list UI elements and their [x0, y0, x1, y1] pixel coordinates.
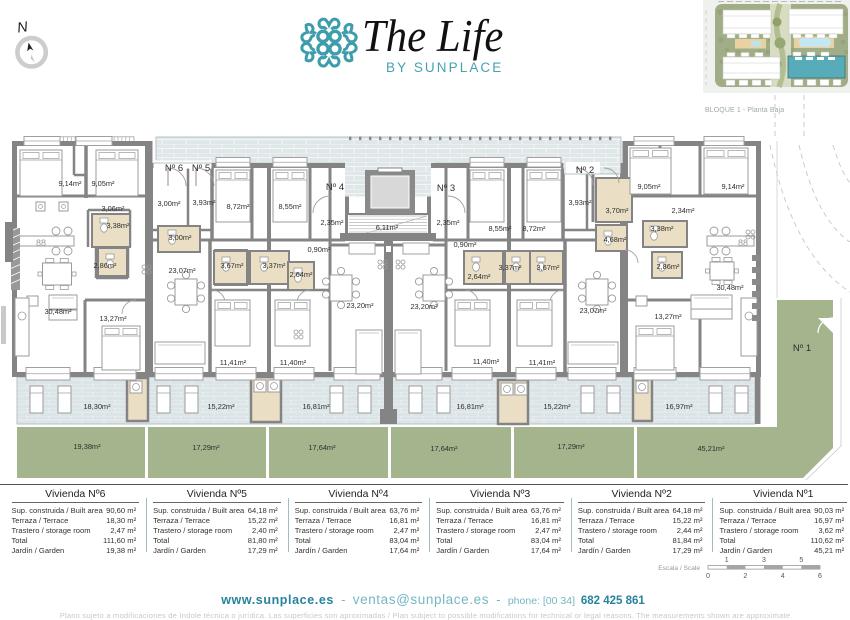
- svg-text:23,07m²: 23,07m²: [579, 306, 607, 315]
- svg-text:13,27m²: 13,27m²: [654, 312, 682, 321]
- svg-text:3: 3: [762, 557, 766, 564]
- svg-text:3,70m²: 3,70m²: [605, 206, 629, 215]
- svg-text:11,40m²: 11,40m²: [473, 357, 500, 366]
- svg-text:Escala / Scale: Escala / Scale: [658, 565, 700, 572]
- svg-text:Nº 3: Nº 3: [437, 183, 455, 194]
- svg-text:3,37m²: 3,37m²: [262, 261, 286, 270]
- svg-text:17,64m²: 17,64m²: [308, 443, 336, 452]
- svg-text:2,64m²: 2,64m²: [289, 270, 313, 279]
- svg-text:3,67m²: 3,67m²: [536, 263, 560, 272]
- svg-text:23,20m²: 23,20m²: [346, 301, 374, 310]
- svg-text:1: 1: [725, 557, 729, 564]
- svg-text:17,29m²: 17,29m²: [557, 442, 585, 451]
- svg-text:0,90m²: 0,90m²: [307, 245, 331, 254]
- svg-text:3,37m²: 3,37m²: [498, 263, 522, 272]
- svg-text:45,21m²: 45,21m²: [697, 444, 725, 453]
- svg-text:3,67m²: 3,67m²: [220, 261, 244, 270]
- svg-text:2,34m²: 2,34m²: [671, 206, 695, 215]
- svg-text:16,81m²: 16,81m²: [456, 402, 484, 411]
- svg-text:30,48m²: 30,48m²: [44, 307, 72, 316]
- svg-text:8,55m²: 8,55m²: [278, 202, 302, 211]
- svg-text:3,38m²: 3,38m²: [650, 224, 674, 233]
- svg-text:6: 6: [818, 573, 822, 580]
- svg-text:17,64m²: 17,64m²: [430, 444, 458, 453]
- svg-text:4,68m²: 4,68m²: [603, 235, 627, 244]
- svg-text:5: 5: [799, 557, 803, 564]
- svg-text:3,93m²: 3,93m²: [192, 198, 216, 207]
- svg-text:Nº 5: Nº 5: [192, 163, 210, 174]
- svg-text:Nº 2: Nº 2: [576, 165, 594, 176]
- svg-text:2,64m²: 2,64m²: [467, 272, 491, 281]
- svg-text:9,05m²: 9,05m²: [637, 182, 661, 191]
- svg-text:11,41m²: 11,41m²: [529, 358, 556, 367]
- svg-text:3,06m²: 3,06m²: [101, 204, 125, 213]
- svg-text:9,05m²: 9,05m²: [91, 179, 115, 188]
- svg-text:9,14m²: 9,14m²: [721, 182, 745, 191]
- svg-text:2,86m²: 2,86m²: [656, 262, 680, 271]
- svg-text:6,11m²: 6,11m²: [376, 223, 399, 232]
- svg-text:3,93m²: 3,93m²: [568, 198, 592, 207]
- svg-text:15,22m²: 15,22m²: [543, 402, 571, 411]
- svg-text:30,48m²: 30,48m²: [716, 283, 744, 292]
- svg-text:13,27m²: 13,27m²: [99, 314, 127, 323]
- svg-text:3,38m²: 3,38m²: [106, 221, 130, 230]
- svg-text:8,72m²: 8,72m²: [226, 202, 250, 211]
- svg-text:2,35m²: 2,35m²: [320, 218, 344, 227]
- svg-text:Nº 4: Nº 4: [326, 182, 344, 193]
- svg-text:88: 88: [738, 238, 748, 248]
- svg-text:88: 88: [36, 238, 46, 248]
- svg-text:11,41m²: 11,41m²: [220, 358, 247, 367]
- svg-text:23,20m²: 23,20m²: [410, 302, 438, 311]
- svg-text:15,22m²: 15,22m²: [207, 402, 235, 411]
- svg-text:Nº 6: Nº 6: [165, 163, 183, 174]
- svg-text:Nº 1: Nº 1: [793, 343, 811, 354]
- svg-text:2: 2: [743, 573, 747, 580]
- svg-text:17,29m²: 17,29m²: [192, 443, 220, 452]
- svg-text:2,35m²: 2,35m²: [436, 218, 460, 227]
- svg-text:16,97m²: 16,97m²: [665, 402, 693, 411]
- svg-text:0,90m²: 0,90m²: [453, 240, 477, 249]
- svg-text:8,72m²: 8,72m²: [522, 224, 546, 233]
- svg-text:11,40m²: 11,40m²: [280, 358, 307, 367]
- svg-text:4: 4: [781, 573, 785, 580]
- svg-text:9,14m²: 9,14m²: [58, 179, 82, 188]
- svg-text:3,00m²: 3,00m²: [157, 199, 181, 208]
- svg-text:8,55m²: 8,55m²: [488, 224, 512, 233]
- svg-text:16,81m²: 16,81m²: [302, 402, 330, 411]
- svg-text:23,07m²: 23,07m²: [168, 266, 196, 275]
- svg-text:N: N: [16, 19, 29, 36]
- svg-text:2,86m²: 2,86m²: [93, 261, 117, 270]
- svg-text:19,38m²: 19,38m²: [73, 442, 101, 451]
- svg-text:18,30m²: 18,30m²: [83, 402, 111, 411]
- svg-text:0: 0: [706, 573, 710, 580]
- svg-text:3,00m²: 3,00m²: [168, 233, 192, 242]
